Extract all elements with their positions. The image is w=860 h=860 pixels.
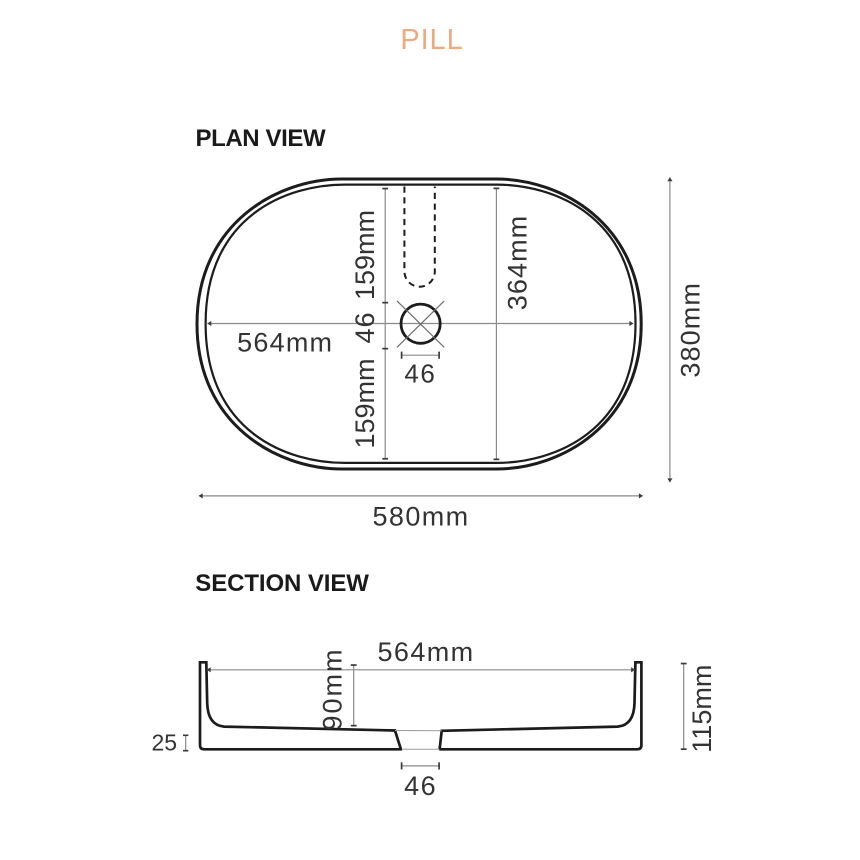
svg-text:90mm: 90mm [317,647,347,730]
svg-text:PLAN VIEW: PLAN VIEW [196,125,326,152]
svg-text:159mm: 159mm [350,358,380,448]
svg-text:380mm: 380mm [676,282,706,378]
svg-text:PILL: PILL [400,24,463,56]
svg-text:46: 46 [350,311,380,343]
svg-text:SECTION VIEW: SECTION VIEW [195,570,369,597]
svg-text:159mm: 159mm [350,210,380,300]
svg-text:115mm: 115mm [687,665,717,753]
svg-text:364mm: 364mm [503,215,533,311]
svg-text:564mm: 564mm [377,637,474,667]
svg-text:580mm: 580mm [372,502,469,532]
svg-text:564mm: 564mm [237,327,333,357]
svg-text:46: 46 [404,771,437,801]
svg-text:46: 46 [404,359,436,389]
svg-text:25: 25 [152,730,178,756]
